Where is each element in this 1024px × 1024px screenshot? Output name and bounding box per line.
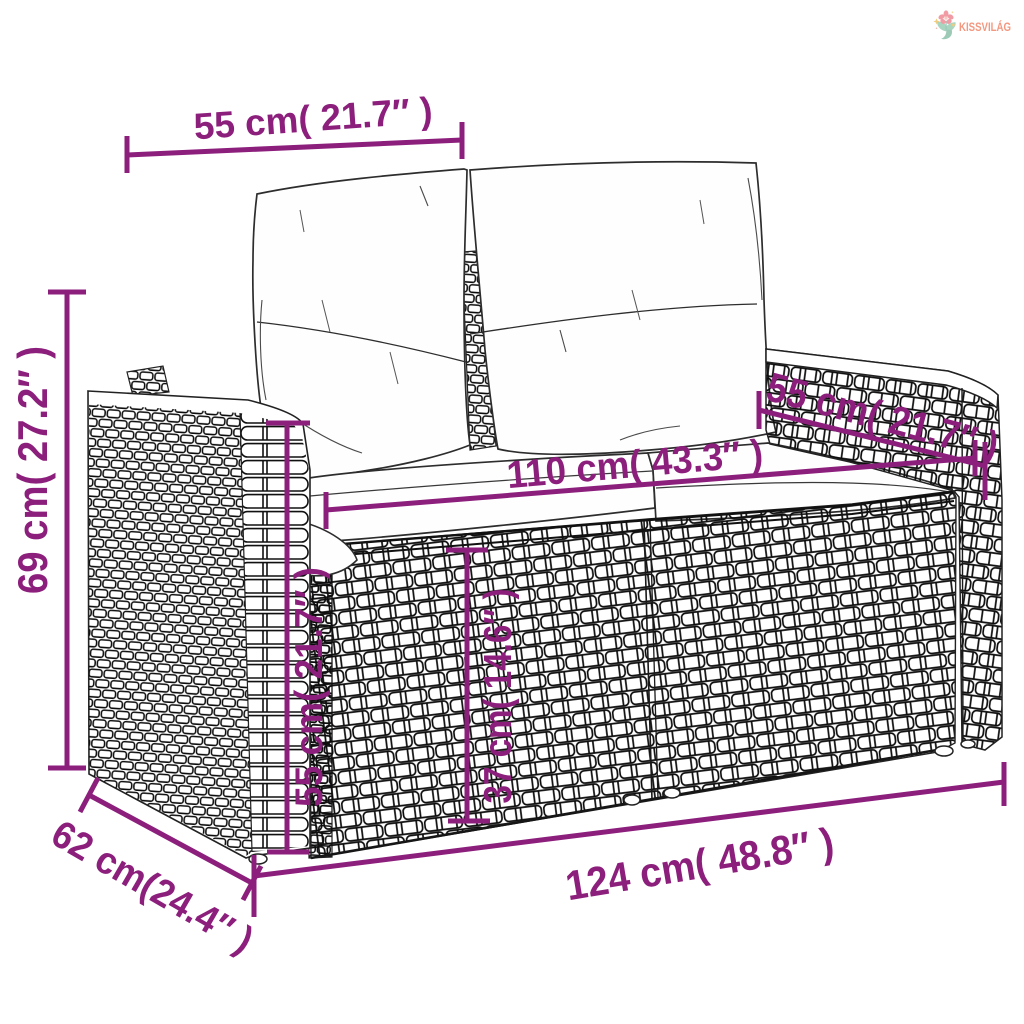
svg-text:55 cm( 21.7″ ): 55 cm( 21.7″ ) [288, 567, 331, 807]
svg-text:69 cm( 27.2″ ): 69 cm( 27.2″ ) [9, 346, 56, 594]
svg-text:37 cm( 14.6″ ): 37 cm( 14.6″ ) [477, 589, 520, 804]
svg-text:KISSVILÁG: KISSVILÁG [959, 19, 1011, 34]
